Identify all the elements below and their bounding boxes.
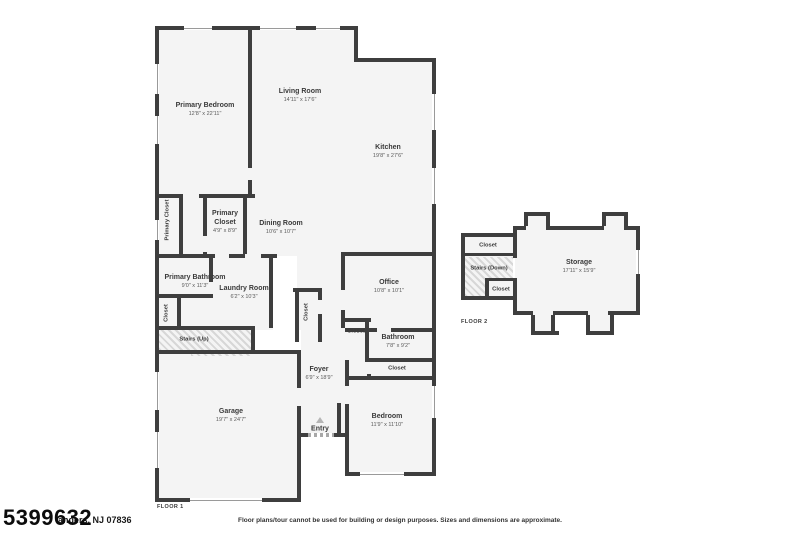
room-label-garage: Garage 19'7" x 24'7" bbox=[216, 408, 246, 424]
window-marker bbox=[432, 386, 436, 418]
room-name: Kitchen bbox=[373, 144, 403, 153]
room-dims: 17'11" x 15'9" bbox=[563, 268, 596, 275]
wall bbox=[463, 253, 513, 256]
room-dims: 19'7" x 24'7" bbox=[216, 417, 246, 424]
wall bbox=[177, 294, 181, 330]
room-label-primary-closet-left: Primary Closet bbox=[164, 199, 171, 241]
room-name: Dining Room bbox=[259, 220, 303, 229]
room-name: Bedroom bbox=[371, 413, 403, 422]
door-opening bbox=[345, 386, 349, 404]
room-label-stairs-down: Stairs (Down) bbox=[470, 265, 507, 272]
window-marker bbox=[155, 220, 159, 240]
wall bbox=[513, 278, 517, 315]
room-dims: 10'8" x 10'1" bbox=[374, 288, 404, 295]
door-opening bbox=[215, 254, 229, 258]
wall bbox=[345, 360, 349, 476]
room-name: Closet bbox=[492, 286, 510, 293]
door-opening bbox=[604, 226, 624, 230]
floor1-tag: FLOOR 1 bbox=[157, 504, 184, 510]
room-label-closet-bedroom: Closet bbox=[388, 365, 406, 372]
room-name: Garage bbox=[216, 408, 246, 417]
room-label-dining-room: Dining Room 10'6" x 10'7" bbox=[259, 220, 303, 236]
door-opening bbox=[203, 236, 207, 252]
room-name: Living Room bbox=[279, 88, 321, 97]
wall bbox=[461, 233, 515, 237]
room-label-kitchen: Kitchen 19'8" x 27'6" bbox=[373, 144, 403, 160]
window-marker bbox=[360, 472, 404, 476]
room-name: Stairs (Up) bbox=[179, 336, 208, 343]
door-opening bbox=[318, 300, 322, 314]
wall bbox=[295, 288, 299, 342]
wall bbox=[624, 212, 628, 230]
window-marker bbox=[184, 26, 212, 30]
room-label-primary-bedroom: Primary Bedroom 12'8" x 22'11" bbox=[176, 102, 235, 118]
door-opening bbox=[533, 311, 553, 315]
wall bbox=[345, 376, 436, 380]
room-dims: 4'9" x 8'9" bbox=[204, 227, 246, 234]
room-label-bathroom: Bathroom 7'8" x 9'2" bbox=[381, 334, 414, 350]
door-opening bbox=[377, 328, 391, 332]
room-name: Closet bbox=[388, 365, 406, 372]
room-name: Closet bbox=[479, 242, 497, 249]
door-opening bbox=[367, 362, 371, 374]
wall bbox=[248, 26, 252, 168]
room-name: Closet bbox=[303, 303, 310, 321]
room-label-primary-closet: Primary Closet 4'9" x 8'9" bbox=[204, 210, 246, 234]
room-label-office: Office 10'8" x 10'1" bbox=[374, 279, 404, 295]
room-dims: 12'8" x 22'11" bbox=[176, 111, 235, 118]
room-dims: 6'9" x 18'9" bbox=[305, 375, 332, 382]
wall bbox=[341, 252, 436, 256]
wall bbox=[337, 403, 341, 435]
room-label-closet-top-f2: Closet bbox=[479, 242, 497, 249]
room-name: Office bbox=[374, 279, 404, 288]
room-label-closet-small-f2: Closet bbox=[492, 286, 510, 293]
window-marker bbox=[155, 372, 159, 410]
room-name: Closet bbox=[347, 328, 365, 335]
window-marker bbox=[636, 250, 640, 274]
wall bbox=[354, 58, 436, 62]
room-name: Foyer bbox=[305, 366, 332, 375]
window-marker bbox=[316, 26, 340, 30]
wall bbox=[610, 311, 614, 333]
wall bbox=[155, 294, 213, 298]
wall bbox=[354, 26, 358, 62]
room-name: Entry bbox=[311, 426, 329, 435]
mls-number: 5399632 bbox=[3, 505, 92, 531]
wall bbox=[155, 326, 255, 330]
floorplan-image: Primary Bedroom 12'8" x 22'11" Living Ro… bbox=[0, 0, 800, 533]
window-marker bbox=[155, 64, 159, 94]
room-label-stairs-up: Stairs (Up) bbox=[179, 336, 208, 343]
room-name: Primary Bathroom bbox=[164, 274, 225, 283]
room-area bbox=[590, 313, 610, 333]
room-area bbox=[345, 437, 434, 476]
room-name: Closet bbox=[163, 304, 170, 322]
wall bbox=[513, 226, 517, 258]
window-marker bbox=[432, 168, 436, 204]
wall bbox=[485, 278, 515, 281]
room-name: Primary Bedroom bbox=[176, 102, 235, 111]
wall bbox=[365, 318, 369, 362]
wall bbox=[318, 288, 322, 342]
room-label-primary-bathroom: Primary Bathroom 9'0" x 11'3" bbox=[164, 274, 225, 290]
room-name: Bathroom bbox=[381, 334, 414, 343]
room-dims: 10'6" x 10'7" bbox=[259, 229, 303, 236]
wall bbox=[155, 350, 301, 354]
room-label-living-room: Living Room 14'11" x 17'6" bbox=[279, 88, 321, 104]
room-dims: 11'9" x 11'10" bbox=[371, 422, 403, 429]
window-marker bbox=[432, 94, 436, 130]
door-opening bbox=[183, 194, 199, 198]
room-dims: 6'2" x 10'3" bbox=[219, 294, 268, 301]
wall bbox=[485, 278, 489, 299]
wall bbox=[251, 326, 255, 354]
room-dims: 14'11" x 17'6" bbox=[279, 97, 321, 104]
wall bbox=[546, 212, 550, 230]
room-label-storage: Storage 17'11" x 15'9" bbox=[563, 259, 596, 275]
window-marker bbox=[155, 432, 159, 468]
room-dims: 9'0" x 11'3" bbox=[164, 283, 225, 290]
door-opening bbox=[526, 226, 546, 230]
room-area bbox=[159, 352, 299, 500]
wall bbox=[248, 180, 252, 196]
room-label-bedroom: Bedroom 11'9" x 11'10" bbox=[371, 413, 403, 429]
door-opening bbox=[245, 254, 261, 258]
room-label-closet-hall: Closet bbox=[163, 304, 170, 322]
window-marker bbox=[260, 26, 296, 30]
wall bbox=[155, 26, 159, 502]
room-label-closet-foyer: Closet bbox=[303, 303, 310, 321]
room-dims: 19'8" x 27'6" bbox=[373, 153, 403, 160]
entry-arrow-icon bbox=[316, 417, 324, 423]
room-name: Primary Closet bbox=[164, 199, 171, 241]
room-area bbox=[157, 28, 356, 256]
wall bbox=[367, 358, 436, 362]
room-name: Stairs (Down) bbox=[470, 265, 507, 272]
room-label-foyer: Foyer 6'9" x 18'9" bbox=[305, 366, 332, 382]
window-marker bbox=[190, 498, 262, 502]
wall bbox=[297, 350, 301, 502]
room-name: Storage bbox=[563, 259, 596, 268]
wall bbox=[461, 233, 465, 300]
room-name: Laundry Room bbox=[219, 285, 268, 294]
wall bbox=[179, 194, 183, 258]
door-opening bbox=[341, 290, 345, 310]
disclaimer-text: Floor plans/tour cannot be used for buil… bbox=[0, 517, 800, 524]
window-marker bbox=[155, 116, 159, 144]
room-label-closet-office: Closet bbox=[347, 328, 365, 335]
room-label-entry: Entry bbox=[311, 426, 329, 435]
room-dims: 7'8" x 9'2" bbox=[381, 343, 414, 350]
floor2-tag: FLOOR 2 bbox=[461, 319, 488, 325]
room-name: Primary Closet bbox=[204, 210, 246, 228]
door-opening bbox=[588, 311, 608, 315]
door-opening bbox=[297, 388, 301, 406]
wall bbox=[269, 256, 273, 328]
room-label-laundry-room: Laundry Room 6'2" x 10'3" bbox=[219, 285, 268, 301]
